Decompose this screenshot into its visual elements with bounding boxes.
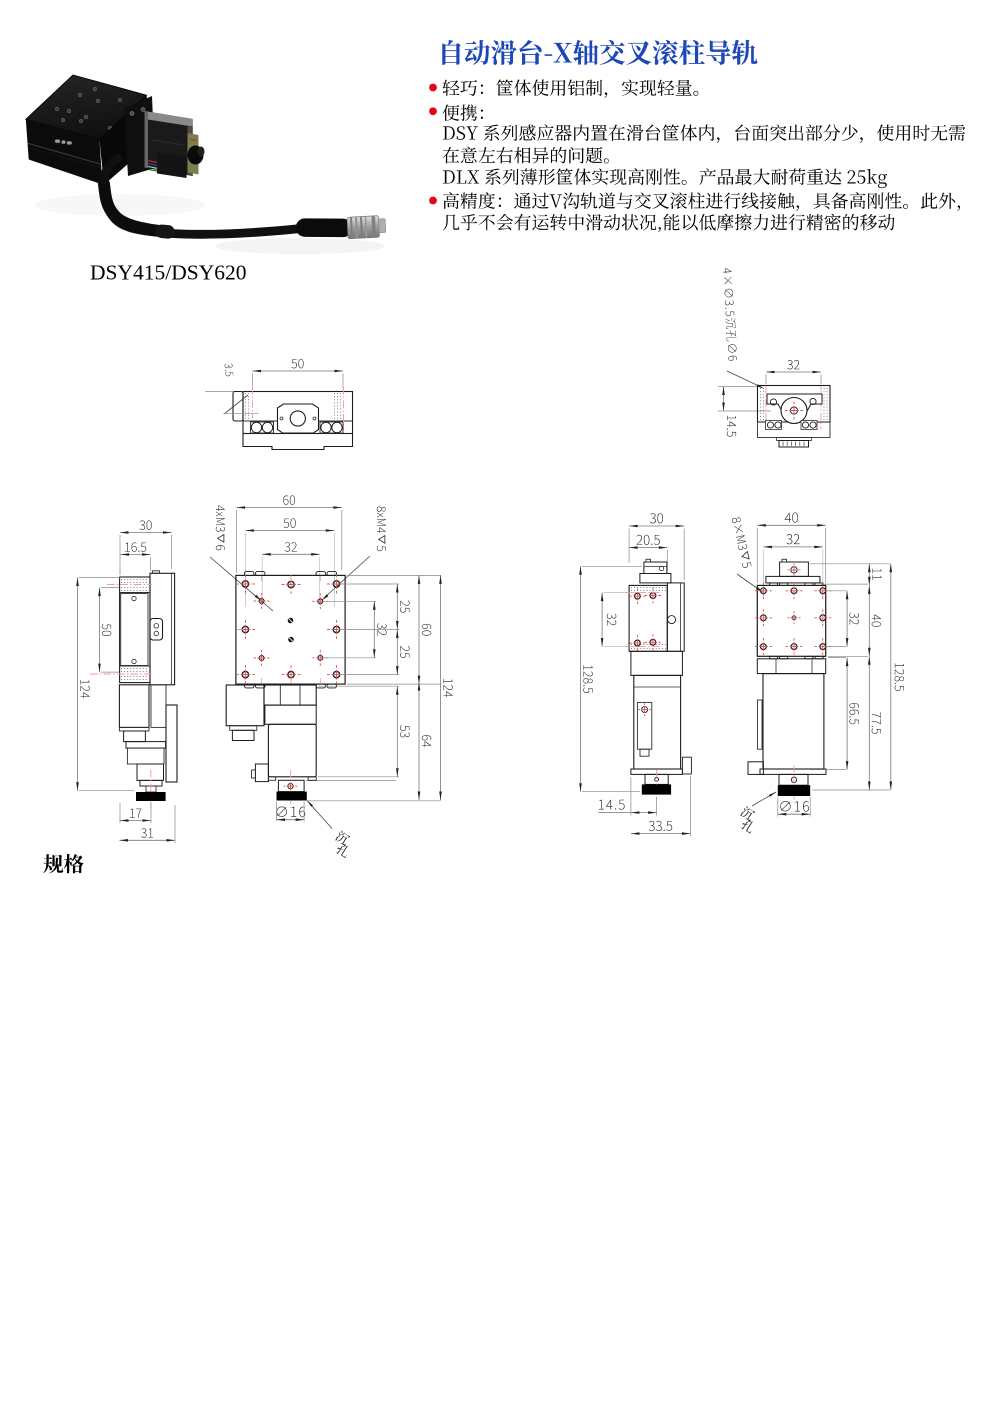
svg-text:DSY415/DSY620: DSY415/DSY620 [90, 261, 247, 285]
